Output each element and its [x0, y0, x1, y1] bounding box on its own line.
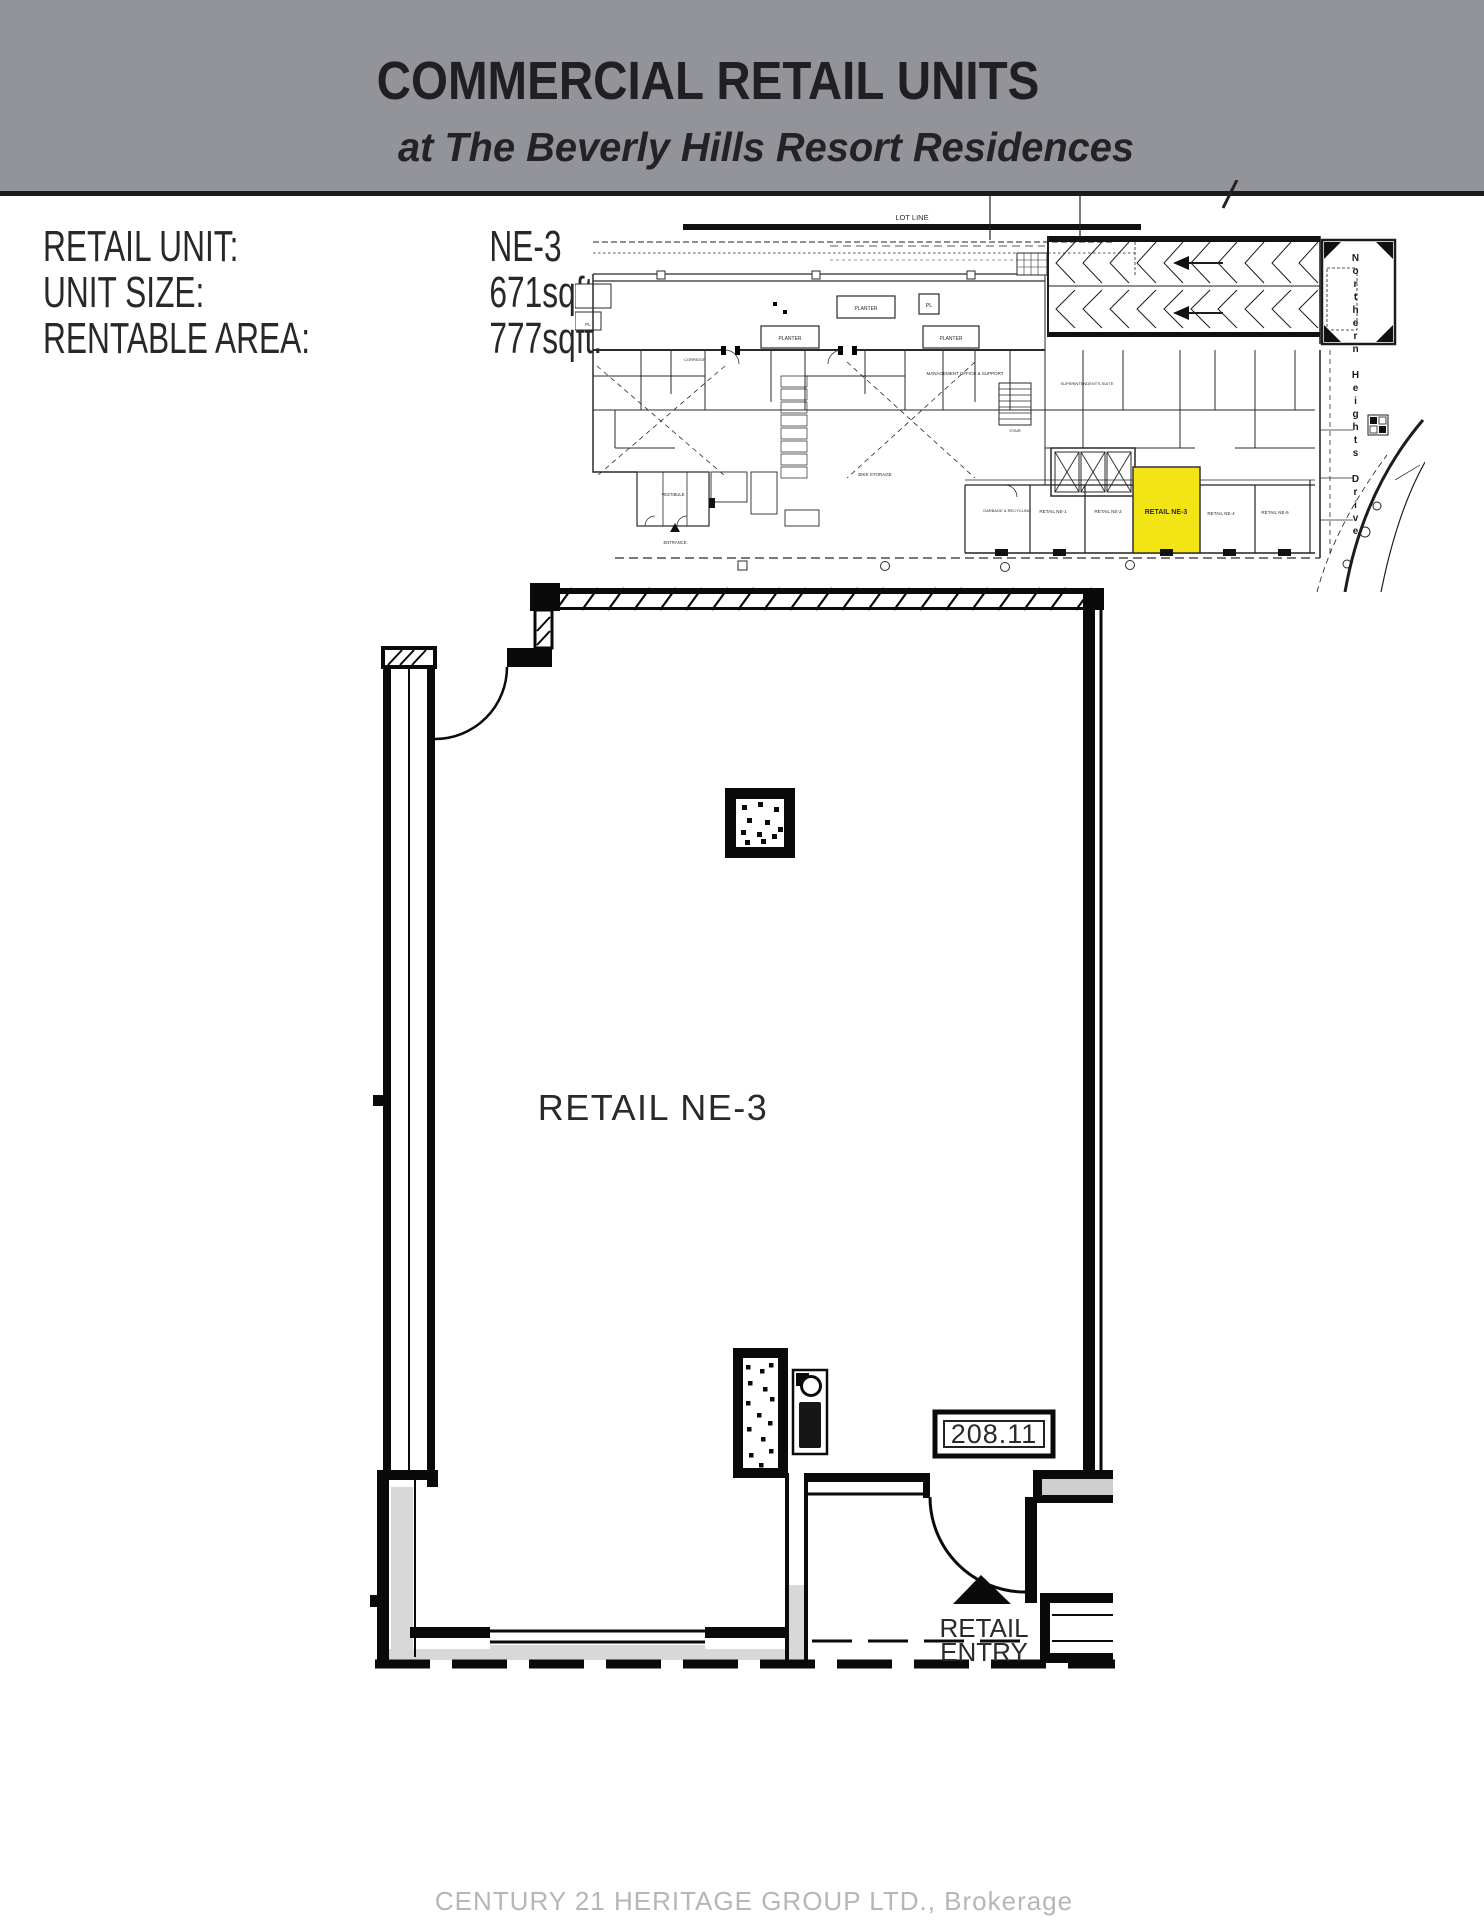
pl-label: PL	[585, 322, 591, 327]
road-curves	[1317, 420, 1425, 592]
planter-label: PLANTER	[778, 336, 801, 342]
lot-line-label: LOT LINE	[895, 213, 928, 222]
vestibule-label: VESTIBULE	[661, 492, 684, 497]
site-plan-inset: LOT LINE PLANTER PLANTER PLANTER PL PL	[575, 180, 1425, 592]
wall-fixture	[793, 1370, 827, 1454]
right-side-blocks	[1033, 1470, 1113, 1663]
unit-label-ne3-highlighted: RETAIL NE-3	[1145, 509, 1188, 516]
terrace-planters	[575, 253, 1047, 348]
entrance-vestibule	[615, 472, 1320, 572]
rentable-area-label: RENTABLE AREA:	[43, 316, 489, 362]
management-office-label: MANAGEMENT OFFICE & SUPPORT	[926, 371, 1003, 376]
unit-label-ne2: RETAIL NE-2	[1094, 509, 1122, 514]
header-band: COMMERCIAL RETAIL UNITS at The Beverly H…	[0, 0, 1484, 196]
dimension-box: 208.11	[935, 1412, 1053, 1456]
structural-column	[725, 788, 795, 858]
superintendent-label: SUPERINTENDENT'S SUITE	[1061, 381, 1114, 386]
unit-door-mark	[1160, 549, 1173, 556]
page-title: COMMERCIAL RETAIL UNITS	[55, 50, 1361, 112]
info-row-rentable: RENTABLE AREA: 777sqft.	[43, 316, 602, 362]
unit-label-ne1: RETAIL NE-1	[1039, 509, 1067, 514]
corridor-label: CORRIDOR	[684, 357, 706, 362]
dimension-value: 208.11	[951, 1419, 1038, 1449]
garbage-label: GARBAGE & RECYCLING	[983, 508, 1031, 513]
info-row-unit: RETAIL UNIT: NE-3	[43, 224, 602, 270]
floor-plan: RETAIL NE-3 208.11	[370, 575, 1200, 1675]
site-plan-drawing: LOT LINE PLANTER PLANTER PLANTER PL PL	[575, 180, 1425, 592]
page-subtitle: at The Beverly Hills Resort Residences	[46, 124, 1484, 171]
entrance-label: ENTRANCE	[663, 540, 686, 545]
planter-label: PLANTER	[939, 336, 962, 342]
unit-name-label: RETAIL NE-3	[538, 1087, 769, 1128]
lot-line	[593, 180, 1237, 275]
service-shaft	[733, 1348, 788, 1478]
entry-label-line2: ENTRY	[940, 1637, 1028, 1667]
top-wall	[507, 583, 1104, 667]
bike-storage-label: BIKE STORAGE	[858, 472, 891, 477]
brokerage-watermark: CENTURY 21 HERITAGE GROUP LTD., Brokerag…	[12, 1886, 1484, 1917]
parking-ramp	[1048, 236, 1320, 337]
info-row-size: UNIT SIZE: 671sqft.	[43, 270, 602, 316]
left-wall	[370, 648, 435, 1607]
right-wall	[1083, 605, 1101, 1471]
unit-size-label: UNIT SIZE:	[43, 270, 489, 316]
unit-label-ne5: RETAIL NE-5	[1261, 510, 1289, 515]
street-name-label: Northern Heights Drive	[1350, 253, 1361, 529]
unit-label-ne4: RETAIL NE-4	[1207, 511, 1235, 516]
planter-label: PLANTER	[854, 306, 877, 312]
entry-door-arc	[930, 1497, 1025, 1592]
building-interior	[593, 236, 1353, 558]
stair-label: STAIR	[1009, 428, 1021, 433]
flyer-page: COMMERCIAL RETAIL UNITS at The Beverly H…	[0, 0, 1484, 1920]
retail-unit-label: RETAIL UNIT:	[43, 224, 489, 270]
floor-plan-drawing: RETAIL NE-3 208.11	[370, 575, 1200, 1675]
retail-unit-value: NE-3	[489, 224, 561, 270]
pl-label: PL	[926, 303, 933, 309]
unit-door-arc	[435, 667, 507, 739]
